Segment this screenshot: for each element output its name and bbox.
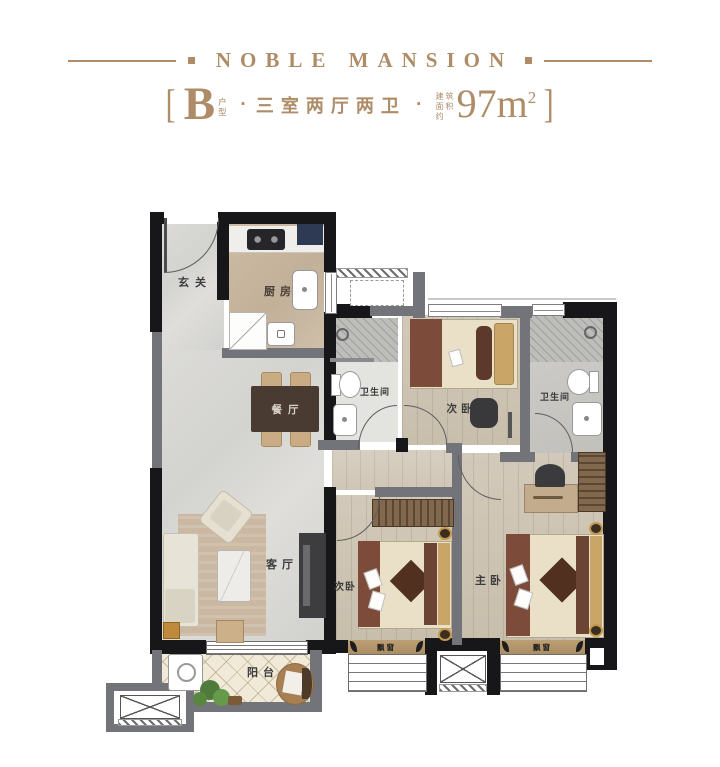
- entry-door-leaf: [164, 218, 167, 272]
- equipment-platform-dashed: [350, 280, 404, 306]
- bath-master-window: [532, 304, 565, 316]
- shower-head-icon: [336, 328, 349, 341]
- wall-segment: [375, 487, 452, 497]
- shower-head-icon: [584, 326, 597, 339]
- hatch-strip: [336, 268, 408, 278]
- corridor-floor: [332, 450, 460, 490]
- bay-window-right-sill: 飘窗: [500, 640, 585, 654]
- wall-segment: [150, 468, 162, 652]
- bathroom-sink: [333, 404, 357, 436]
- wall-segment: [324, 212, 336, 272]
- bed-headboard: [424, 543, 437, 625]
- separator-dot-1: ·: [240, 95, 246, 113]
- desk: [524, 484, 578, 513]
- armchair-cushion: [209, 499, 243, 533]
- bed-pillow: [494, 323, 514, 385]
- bracket-right: ]: [544, 84, 554, 124]
- wardrobe: [578, 452, 606, 512]
- appliance-icon: [277, 330, 285, 338]
- dining-label: 餐厅: [266, 402, 305, 417]
- tv-cabinet: [299, 533, 326, 618]
- unit-subtitle: [ B 户型 · 三室两厅两卫 · 建筑面积约 97m2 ]: [0, 74, 720, 134]
- shower-divider: [330, 358, 374, 362]
- area-label: 建筑面积约: [436, 92, 454, 122]
- sofa-chaise: [165, 589, 195, 623]
- toilet-tank: [589, 371, 599, 393]
- entry-label: 玄关: [158, 274, 226, 290]
- ac-unit-box: [440, 655, 486, 683]
- floorplan-page: NOBLE MANSION [ B 户型 · 三室两厅两卫 · 建筑面积约 97…: [0, 0, 720, 767]
- decor-square-left: [188, 57, 195, 64]
- plant-pot: [228, 696, 242, 705]
- dining-chair: [290, 430, 311, 447]
- bedroom-top-window: [428, 304, 502, 317]
- stove-icon: [247, 229, 285, 250]
- decor-line-left: [68, 60, 176, 62]
- curtain-icon: [502, 641, 509, 652]
- hatch-strip: [439, 684, 487, 692]
- bay-window-left-sill: 飘窗: [348, 640, 425, 654]
- decor-line-right: [544, 60, 652, 62]
- nightstand-lamp-icon: [438, 628, 452, 641]
- layout-text: 三室两厅两卫: [256, 92, 406, 118]
- wall-segment: [332, 640, 348, 653]
- ac-unit-box: [120, 695, 180, 719]
- bay-window-right-label: 飘窗: [533, 642, 552, 653]
- side-table: [216, 620, 244, 643]
- bay-window-left-label: 飘窗: [377, 642, 396, 653]
- faucet-icon: [584, 416, 589, 421]
- dining-table: 餐厅: [251, 386, 319, 432]
- curtain-icon: [576, 641, 583, 652]
- faucet-icon: [342, 417, 347, 422]
- washing-machine: [168, 654, 203, 691]
- ac-platform-wall: [487, 649, 500, 695]
- wardrobe: [372, 499, 454, 527]
- unit-letter: B: [184, 81, 215, 128]
- nightstand-lamp-icon: [589, 522, 603, 535]
- bed-pillow: [590, 536, 602, 634]
- bath-main-label: 卫生间: [346, 385, 403, 398]
- separator-dot-2: ·: [416, 95, 422, 113]
- wall-segment: [218, 212, 336, 224]
- bed-headboard: [576, 536, 589, 634]
- bedroom-top-label: 次卧: [434, 401, 484, 416]
- exterior-sill-line: [428, 298, 616, 300]
- wall-segment: [318, 440, 360, 450]
- desk-handle: [533, 496, 563, 499]
- plant: [193, 692, 207, 706]
- balcony-label: 阳台: [235, 664, 286, 680]
- area-value: 97m2: [457, 84, 537, 124]
- chair-back: [302, 668, 312, 699]
- master-label: 主卧: [464, 572, 512, 588]
- kitchen-label: 厨房: [244, 283, 311, 299]
- living-label: 客厅: [252, 556, 307, 572]
- brand-header: NOBLE MANSION: [0, 48, 720, 73]
- bed-duvet: [410, 319, 442, 387]
- decor-square-right: [525, 57, 532, 64]
- hatch-strip: [118, 719, 182, 726]
- kitchen-appliance: [267, 322, 295, 346]
- decor-gold-item: [163, 622, 180, 639]
- wall-segment: [500, 452, 535, 462]
- floor-lamp-icon: [508, 412, 512, 438]
- bracket-left: [: [166, 84, 176, 124]
- wall-segment: [520, 306, 530, 452]
- bay-window-left-glass: [348, 654, 427, 692]
- wall-segment: [413, 272, 425, 318]
- kitchen-cabinet: [229, 312, 267, 350]
- bed-pillow: [438, 543, 450, 625]
- wall-notch: [590, 648, 604, 665]
- bath-master-label: 卫生间: [525, 390, 584, 403]
- dining-chair: [261, 430, 282, 447]
- curtain-icon: [416, 641, 423, 652]
- desk-chair: [535, 464, 565, 487]
- balcony-sliding-door: [206, 641, 308, 655]
- bedroom-bottom-label: 次卧: [330, 578, 360, 593]
- brand-title: NOBLE MANSION: [207, 48, 513, 73]
- nightstand-lamp-icon: [438, 527, 452, 540]
- wall-segment: [150, 212, 162, 332]
- refrigerator: [297, 224, 323, 245]
- nightstand-lamp-icon: [589, 624, 603, 637]
- bay-window-right-glass: [500, 654, 587, 692]
- curtain-icon: [350, 641, 357, 652]
- area-exponent: 2: [528, 88, 537, 107]
- tv-screen: [303, 545, 310, 606]
- unit-label: 户型: [218, 98, 228, 118]
- coffee-table: [217, 550, 251, 602]
- wall-segment: [152, 332, 162, 468]
- bathroom-sink: [572, 402, 602, 436]
- bed-throw: [476, 326, 492, 380]
- wall-segment: [370, 306, 414, 316]
- washer-drum-icon: [177, 663, 196, 682]
- kitchen-window: [325, 272, 337, 314]
- bath-master-shower-floor: [530, 316, 604, 362]
